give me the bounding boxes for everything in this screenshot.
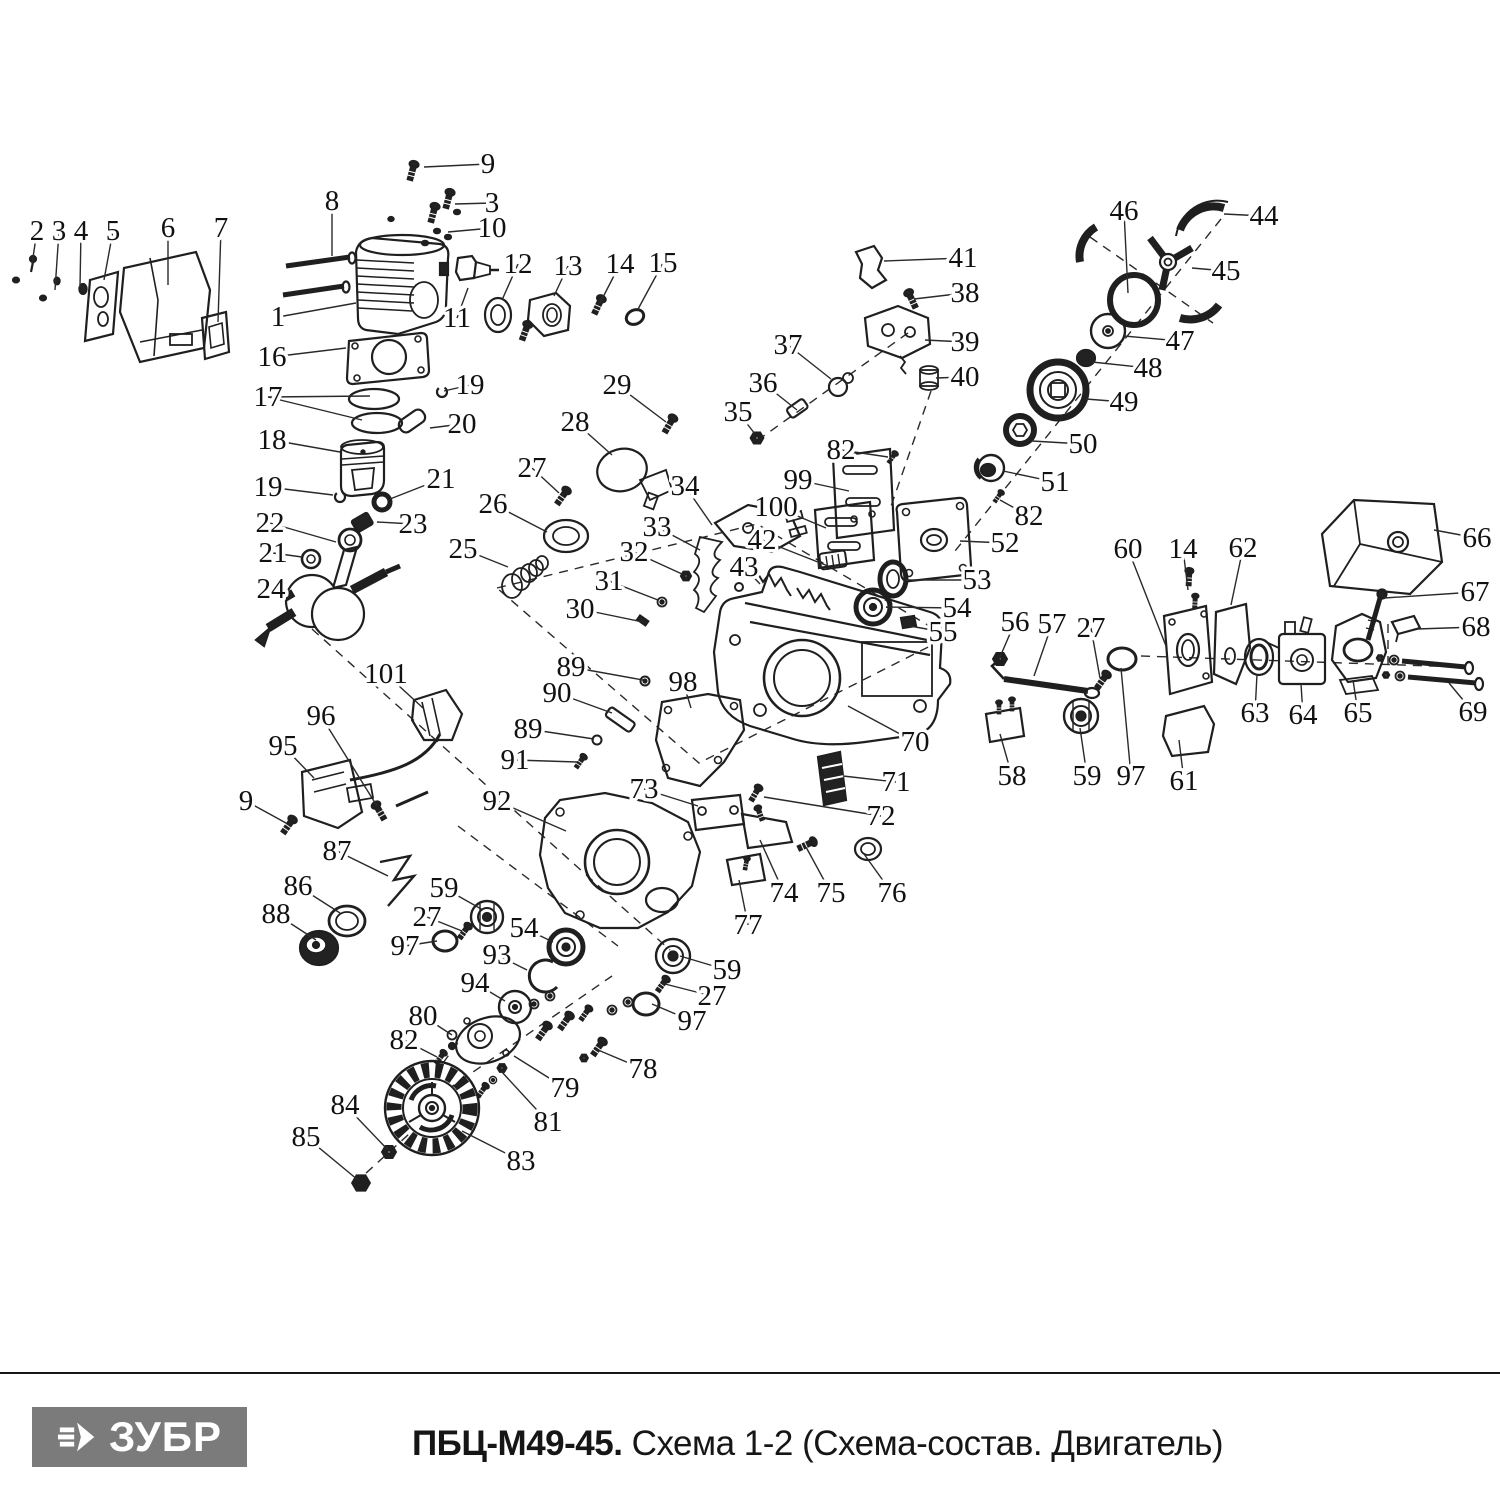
part-callout-2: 2 — [30, 215, 45, 247]
part-callout-20: 20 — [448, 408, 477, 440]
brake-group — [692, 648, 1136, 885]
part-callout-31: 31 — [595, 565, 624, 597]
callout-leaders — [32, 164, 1477, 1180]
part-callout-82: 82 — [390, 1024, 419, 1056]
part-callout-100: 100 — [754, 491, 798, 523]
part-callout-35: 35 — [724, 396, 753, 428]
brand-name: ЗУБР — [109, 1416, 222, 1458]
part-callout-78: 78 — [629, 1053, 658, 1085]
part-callout-45: 45 — [1212, 255, 1241, 287]
part-callout-30: 30 — [566, 593, 595, 625]
part-callout-5: 5 — [106, 215, 121, 247]
exploded-parts-diagram: 2345678931011112131415161719201819212223… — [0, 0, 1500, 1372]
part-callout-28: 28 — [561, 406, 590, 438]
part-callout-59: 59 — [1073, 760, 1102, 792]
part-callout-14: 14 — [1169, 533, 1199, 565]
part-callout-63: 63 — [1241, 697, 1270, 729]
part-callout-10: 10 — [478, 212, 507, 244]
leader-line-9 — [424, 164, 488, 167]
part-callout-62: 62 — [1229, 532, 1258, 564]
part-callout-22: 22 — [256, 507, 285, 539]
part-callout-72: 72 — [867, 800, 896, 832]
part-callout-39: 39 — [951, 326, 980, 358]
parts-art — [13, 160, 1483, 1190]
zubr-diamond-icon — [57, 1416, 99, 1458]
part-callout-68: 68 — [1462, 611, 1491, 643]
part-callout-76: 76 — [878, 877, 907, 909]
part-callout-49: 49 — [1110, 386, 1139, 418]
part-callout-79: 79 — [551, 1072, 580, 1104]
part-callout-84: 84 — [331, 1089, 361, 1121]
part-callout-77: 77 — [734, 909, 763, 941]
part-callout-65: 65 — [1344, 697, 1373, 729]
leader-line-17 — [268, 396, 370, 397]
part-callout-24: 24 — [257, 573, 287, 605]
part-callout-43: 43 — [730, 551, 759, 583]
part-callout-83: 83 — [507, 1145, 536, 1177]
part-callout-4: 4 — [74, 215, 89, 247]
muffler-group — [13, 252, 229, 362]
part-callout-8: 8 — [325, 185, 340, 217]
part-callout-81: 81 — [534, 1106, 563, 1138]
part-callout-57: 57 — [1038, 608, 1067, 640]
part-callout-66: 66 — [1463, 522, 1492, 554]
part-callout-82: 82 — [827, 434, 856, 466]
part-callout-82: 82 — [1015, 500, 1044, 532]
head-screws — [283, 160, 460, 295]
brand-logo: ЗУБР — [32, 1407, 247, 1467]
part-callout-101: 101 — [364, 658, 408, 690]
part-callout-91: 91 — [501, 744, 530, 776]
part-callout-90: 90 — [543, 677, 572, 709]
model-number: ПБЦ-М49-45. — [412, 1424, 622, 1463]
part-callout-85: 85 — [292, 1121, 321, 1153]
part-callout-25: 25 — [449, 533, 478, 565]
part-callout-41: 41 — [949, 242, 978, 274]
part-callout-94: 94 — [461, 967, 491, 999]
part-callout-70: 70 — [901, 726, 930, 758]
document-title: ПБЦ-М49-45. Схема 1-2 (Схема-состав. Дви… — [412, 1424, 1223, 1464]
part-callout-21: 21 — [259, 537, 288, 569]
part-callout-37: 37 — [774, 329, 803, 361]
part-callout-7: 7 — [214, 212, 229, 244]
part-callout-12: 12 — [504, 248, 533, 280]
cylinder-group — [356, 235, 646, 341]
part-callout-44: 44 — [1250, 200, 1280, 232]
part-callout-56: 56 — [1001, 606, 1030, 638]
part-callout-97: 97 — [391, 930, 420, 962]
part-callout-95: 95 — [269, 730, 298, 762]
part-callout-26: 26 — [479, 488, 508, 520]
part-callout-27: 27 — [413, 901, 442, 933]
part-callout-32: 32 — [620, 536, 649, 568]
part-callout-69: 69 — [1459, 696, 1488, 728]
part-callout-55: 55 — [929, 616, 958, 648]
part-callout-19: 19 — [456, 369, 485, 401]
part-callout-38: 38 — [951, 277, 980, 309]
part-callout-9: 9 — [481, 148, 496, 180]
part-callout-23: 23 — [399, 508, 428, 540]
part-callout-60: 60 — [1114, 533, 1143, 565]
part-callout-19: 19 — [254, 471, 283, 503]
part-callout-3: 3 — [52, 215, 67, 247]
part-callout-50: 50 — [1069, 428, 1098, 460]
part-callout-47: 47 — [1166, 325, 1195, 357]
flywheel-group — [353, 992, 633, 1190]
part-callout-27: 27 — [518, 452, 547, 484]
part-callout-54: 54 — [510, 912, 540, 944]
part-callout-67: 67 — [1461, 576, 1490, 608]
part-callout-36: 36 — [749, 367, 778, 399]
part-callout-64: 64 — [1289, 699, 1319, 731]
part-callout-18: 18 — [258, 424, 287, 456]
part-callout-97: 97 — [1117, 760, 1146, 792]
part-callout-51: 51 — [1041, 466, 1070, 498]
part-callout-17: 17 — [254, 381, 283, 413]
part-callout-16: 16 — [258, 341, 287, 373]
part-callout-34: 34 — [671, 470, 701, 502]
part-callout-74: 74 — [770, 877, 800, 909]
part-callout-13: 13 — [554, 250, 583, 282]
part-callout-96: 96 — [307, 700, 336, 732]
part-callout-15: 15 — [649, 247, 678, 279]
schematic-page: 2345678931011112131415161719201819212223… — [0, 0, 1500, 1500]
schema-subtitle: Схема 1-2 (Схема-состав. Двигатель) — [622, 1424, 1223, 1463]
part-callout-6: 6 — [161, 212, 176, 244]
part-callout-98: 98 — [669, 666, 698, 698]
leader-line-1 — [278, 303, 356, 317]
part-callout-14: 14 — [606, 248, 636, 280]
part-callout-87: 87 — [323, 835, 352, 867]
part-callout-1: 1 — [271, 301, 286, 333]
part-callout-9: 9 — [239, 785, 254, 817]
part-callout-48: 48 — [1134, 352, 1163, 384]
part-callout-46: 46 — [1110, 195, 1139, 227]
part-callout-97: 97 — [678, 1005, 707, 1037]
part-callout-58: 58 — [998, 760, 1027, 792]
part-callout-75: 75 — [817, 877, 846, 909]
part-callout-29: 29 — [603, 369, 632, 401]
part-callout-27: 27 — [1077, 612, 1106, 644]
footer-divider — [0, 1372, 1500, 1374]
part-callout-89: 89 — [514, 713, 543, 745]
part-callout-73: 73 — [630, 773, 659, 805]
part-callout-92: 92 — [483, 785, 512, 817]
part-callout-21: 21 — [427, 463, 456, 495]
part-callout-61: 61 — [1170, 765, 1199, 797]
part-callout-71: 71 — [882, 766, 911, 798]
part-callout-11: 11 — [443, 302, 471, 334]
part-callout-59: 59 — [430, 872, 459, 904]
part-callout-88: 88 — [262, 898, 291, 930]
part-callout-40: 40 — [951, 361, 980, 393]
